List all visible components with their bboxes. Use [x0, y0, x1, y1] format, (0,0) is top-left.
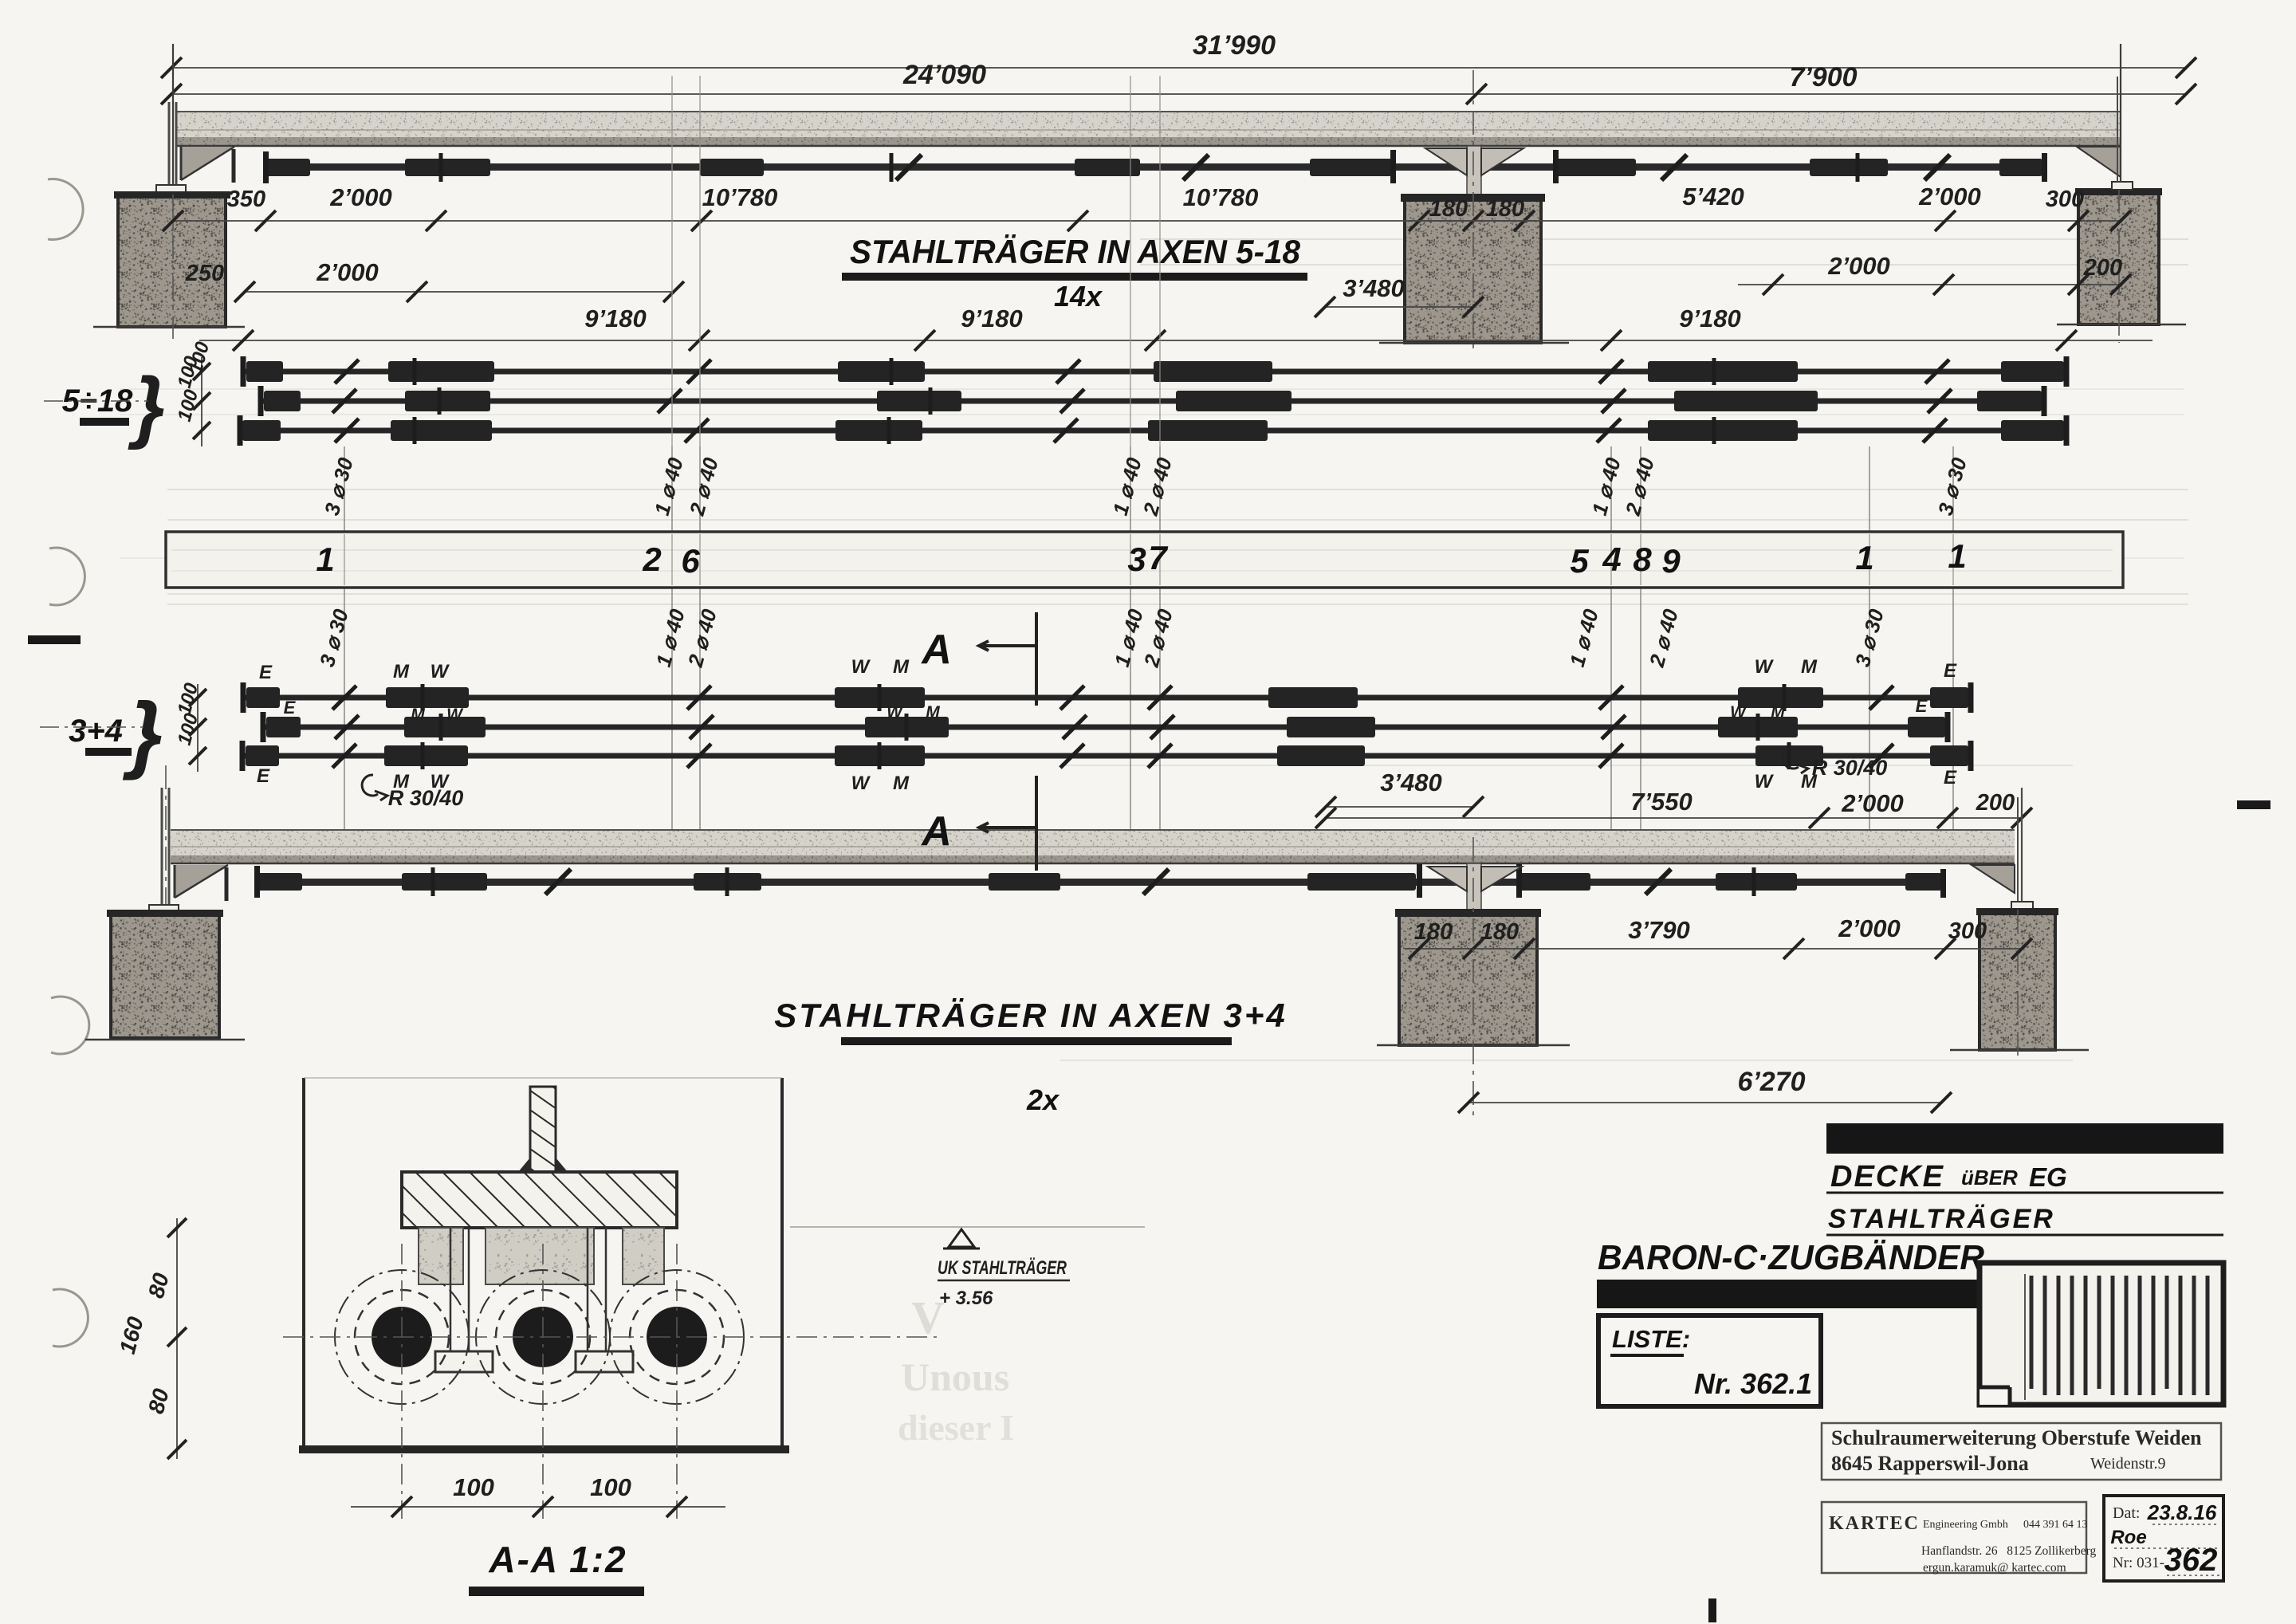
svg-text:9: 9: [1661, 542, 1681, 580]
svg-text:180: 180: [1429, 196, 1468, 222]
svg-text:KARTEC: KARTEC: [1829, 1513, 1920, 1534]
svg-text:7’550: 7’550: [1630, 788, 1693, 816]
svg-text:2x: 2x: [1026, 1083, 1060, 1116]
svg-text:Dat:: Dat:: [2113, 1504, 2140, 1522]
svg-text:2’000: 2’000: [1838, 914, 1901, 942]
svg-text:8: 8: [1633, 541, 1652, 578]
svg-text:M: M: [893, 773, 910, 794]
svg-text:31’990: 31’990: [1193, 30, 1276, 61]
svg-text:W: W: [431, 661, 450, 682]
svg-text:E: E: [1944, 767, 1957, 788]
svg-text:E: E: [284, 698, 297, 718]
svg-text:A: A: [920, 808, 952, 855]
svg-text:Hanflandstr. 26 8125 Zollike: Hanflandstr. 26 8125 Zollikerberg: [1921, 1544, 2097, 1558]
svg-text:180: 180: [1486, 196, 1524, 222]
svg-text:W: W: [851, 656, 871, 678]
svg-text:6’270: 6’270: [1737, 1067, 1805, 1097]
svg-text:DECKE: DECKE: [1830, 1160, 1944, 1193]
svg-text:350: 350: [227, 187, 265, 212]
svg-text:A: A: [920, 627, 952, 673]
svg-text:2’000: 2’000: [1918, 183, 1981, 210]
svg-text:180: 180: [1480, 919, 1519, 945]
svg-text:6: 6: [681, 542, 700, 580]
svg-text:2’000: 2’000: [1841, 789, 1904, 817]
svg-text:4: 4: [1602, 541, 1621, 578]
svg-text:W: W: [887, 703, 904, 722]
svg-text:3: 3: [1127, 541, 1146, 578]
svg-text:STAHLTRÄGER IN AXEN 5-18: STAHLTRÄGER IN AXEN 5-18: [850, 233, 1301, 270]
svg-text:E: E: [1916, 696, 1928, 716]
svg-text:200: 200: [2083, 255, 2122, 281]
svg-text:044 391 64 13: 044 391 64 13: [2023, 1519, 2088, 1531]
svg-text:Weidenstr.9: Weidenstr.9: [2090, 1455, 2165, 1473]
svg-text:10’780: 10’780: [702, 183, 778, 211]
svg-text:300: 300: [2046, 187, 2084, 212]
svg-text:E: E: [259, 662, 273, 683]
svg-text:Nr. 362.1: Nr. 362.1: [1694, 1367, 1812, 1400]
svg-text:M: M: [893, 656, 910, 678]
svg-text:9’180: 9’180: [1679, 305, 1741, 332]
svg-text:M: M: [411, 706, 425, 724]
svg-text:dieser I: dieser I: [898, 1407, 1014, 1448]
svg-text:2’000: 2’000: [1827, 252, 1890, 280]
svg-text:180: 180: [1414, 919, 1453, 945]
svg-text:5: 5: [1570, 542, 1589, 580]
svg-text:E: E: [1944, 660, 1957, 682]
svg-text:LISTE:: LISTE:: [1612, 1325, 1690, 1353]
svg-text:1: 1: [1948, 537, 1966, 575]
svg-text:2: 2: [642, 541, 661, 578]
svg-text:Nr: 031-: Nr: 031-: [2113, 1555, 2164, 1571]
svg-text:M: M: [393, 661, 410, 682]
svg-text:}: }: [128, 361, 165, 450]
svg-text:14x: 14x: [1054, 280, 1103, 313]
svg-text:23.8.16: 23.8.16: [2147, 1500, 2217, 1524]
svg-text:300: 300: [1948, 918, 1987, 944]
svg-text:24’090: 24’090: [902, 60, 986, 90]
svg-text:7’900: 7’900: [1789, 62, 1857, 92]
svg-text:W: W: [1730, 703, 1748, 722]
svg-text:EG: EG: [2029, 1162, 2067, 1192]
svg-text:W: W: [1755, 771, 1775, 792]
svg-text:+ 3.56: + 3.56: [939, 1288, 993, 1309]
svg-text:STAHLTRÄGER: STAHLTRÄGER: [1828, 1204, 2055, 1234]
svg-text:E: E: [257, 765, 270, 787]
svg-text:2’000: 2’000: [316, 258, 379, 286]
svg-text:ergun.karamuk@ kartec.com: ergun.karamuk@ kartec.com: [1923, 1561, 2066, 1575]
svg-text:250: 250: [185, 261, 224, 286]
svg-text:üBER: üBER: [1961, 1166, 2018, 1189]
svg-text:Roe: Roe: [2110, 1527, 2146, 1548]
svg-text:200: 200: [1976, 790, 2015, 816]
svg-text:100: 100: [453, 1473, 494, 1501]
svg-text:3’480: 3’480: [1380, 769, 1442, 796]
svg-text:Engineering Gmbh: Engineering Gmbh: [1923, 1519, 2008, 1531]
svg-text:W: W: [446, 706, 464, 724]
svg-text:9’180: 9’180: [584, 305, 647, 332]
svg-text:BARON-C·ZUGBÄNDER: BARON-C·ZUGBÄNDER: [1598, 1238, 1984, 1277]
svg-text:M: M: [926, 703, 940, 722]
svg-text:W: W: [851, 773, 871, 794]
svg-text:362: 362: [2164, 1543, 2218, 1578]
svg-text:5’420: 5’420: [1682, 183, 1744, 210]
svg-text:100: 100: [590, 1473, 631, 1501]
svg-text:M: M: [1801, 656, 1818, 678]
svg-text:U​nous: U​nous: [901, 1355, 1009, 1399]
svg-text:7: 7: [1148, 539, 1168, 576]
svg-text:R 30/40: R 30/40: [1812, 756, 1888, 780]
svg-text:3+4: 3+4: [69, 714, 123, 749]
svg-text:V: V: [911, 1292, 945, 1343]
svg-text:A-A 1:2: A-A 1:2: [488, 1539, 627, 1580]
svg-text:9’180: 9’180: [961, 305, 1023, 332]
svg-text:M: M: [1771, 703, 1785, 722]
svg-text:W: W: [1755, 656, 1775, 678]
svg-text:STAHLTRÄGER IN AXEN 3+4: STAHLTRÄGER IN AXEN 3+4: [774, 997, 1287, 1034]
svg-text:UK STAHLTRÄGER: UK STAHLTRÄGER: [938, 1257, 1067, 1279]
svg-text:Schulraumerweiterung Oberstuf: Schulraumerweiterung Oberstufe Weiden: [1831, 1426, 2202, 1449]
svg-text:R 30/40: R 30/40: [388, 786, 464, 810]
svg-text:3’790: 3’790: [1628, 916, 1690, 944]
svg-text:2’000: 2’000: [329, 183, 392, 211]
svg-text:10’780: 10’780: [1183, 183, 1259, 211]
svg-text:3’480: 3’480: [1343, 274, 1405, 302]
svg-text:8645 Rapperswil-Jona: 8645 Rapperswil-Jona: [1831, 1452, 2029, 1475]
svg-text:1: 1: [316, 541, 334, 578]
svg-text:1: 1: [1855, 539, 1873, 576]
